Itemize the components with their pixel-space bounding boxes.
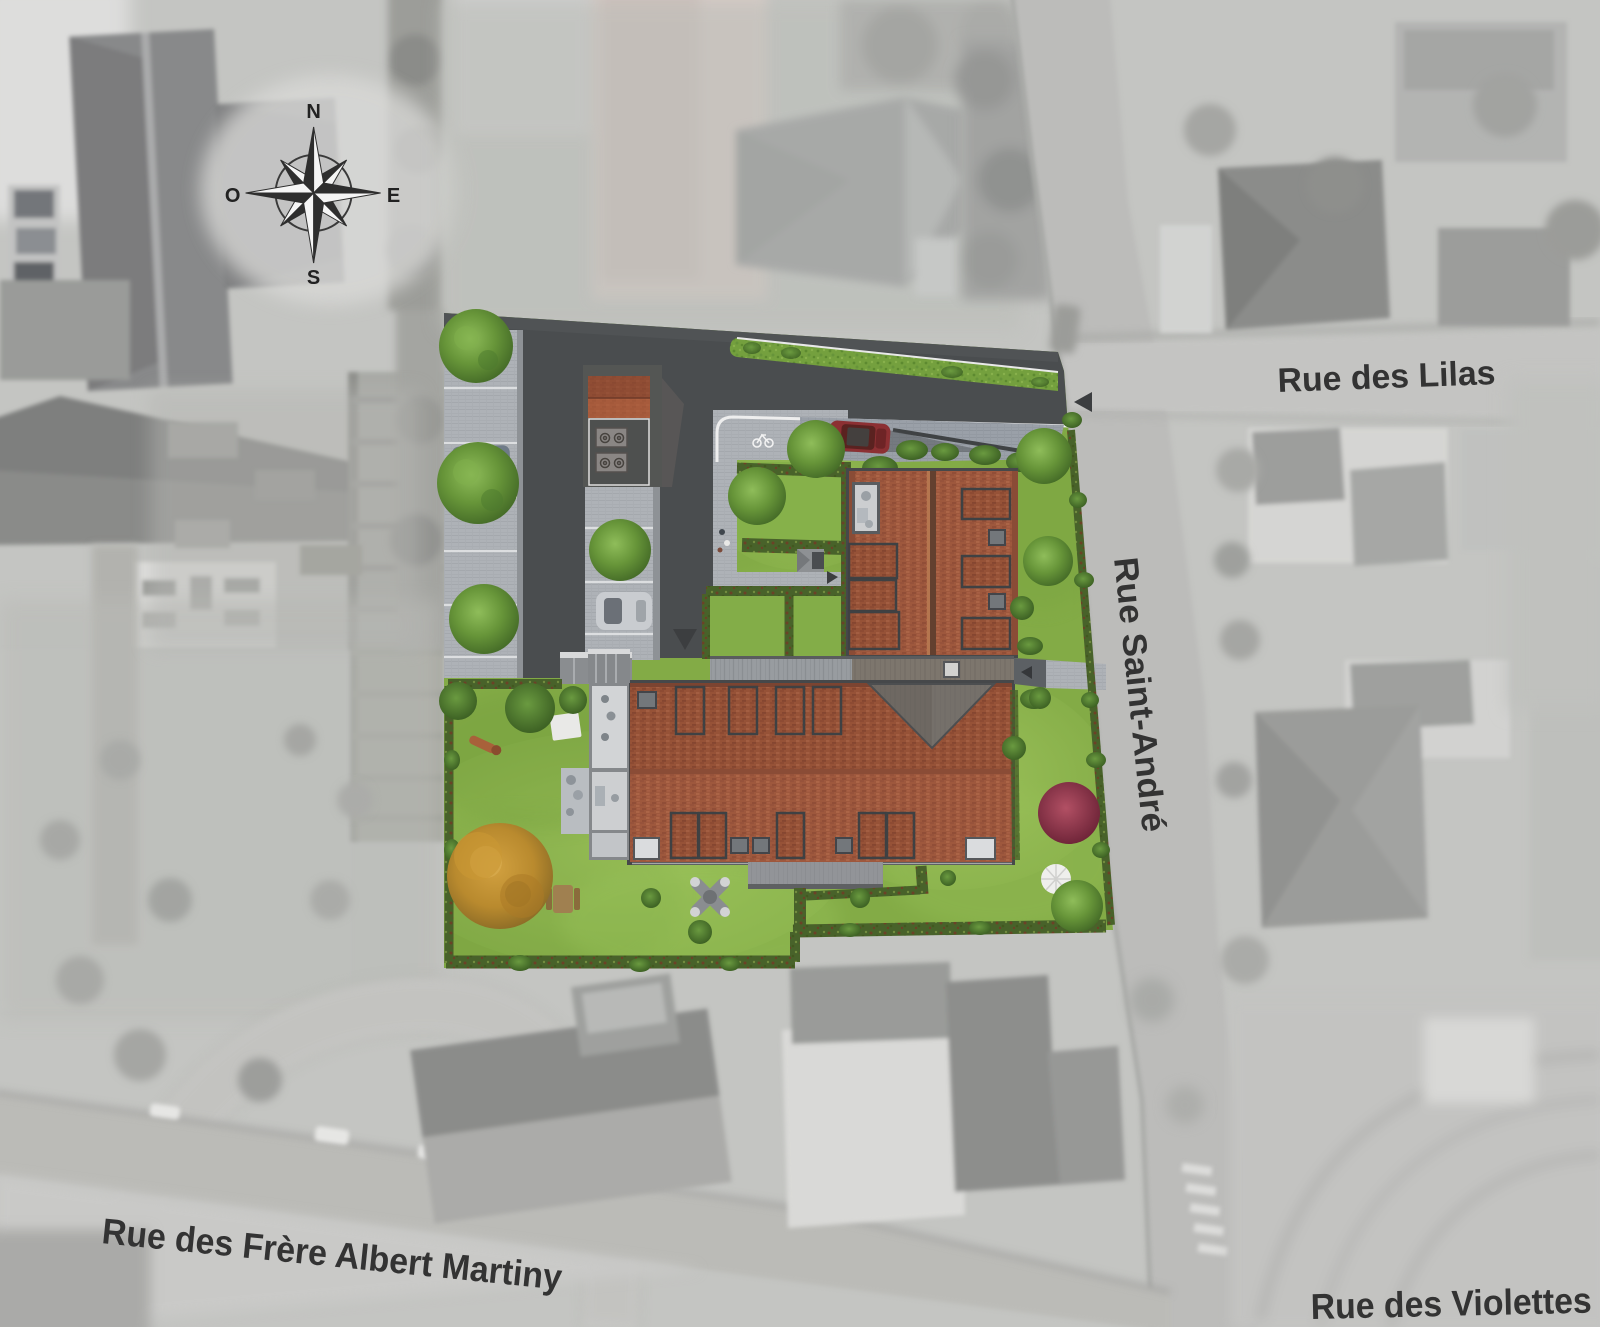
- svg-text:O: O: [225, 185, 241, 207]
- svg-text:E: E: [387, 185, 400, 207]
- svg-text:Rue des Lilas: Rue des Lilas: [1277, 354, 1496, 400]
- svg-text:S: S: [307, 267, 320, 289]
- svg-text:Rue des Violettes: Rue des Violettes: [1310, 1280, 1592, 1327]
- svg-text:N: N: [306, 101, 320, 123]
